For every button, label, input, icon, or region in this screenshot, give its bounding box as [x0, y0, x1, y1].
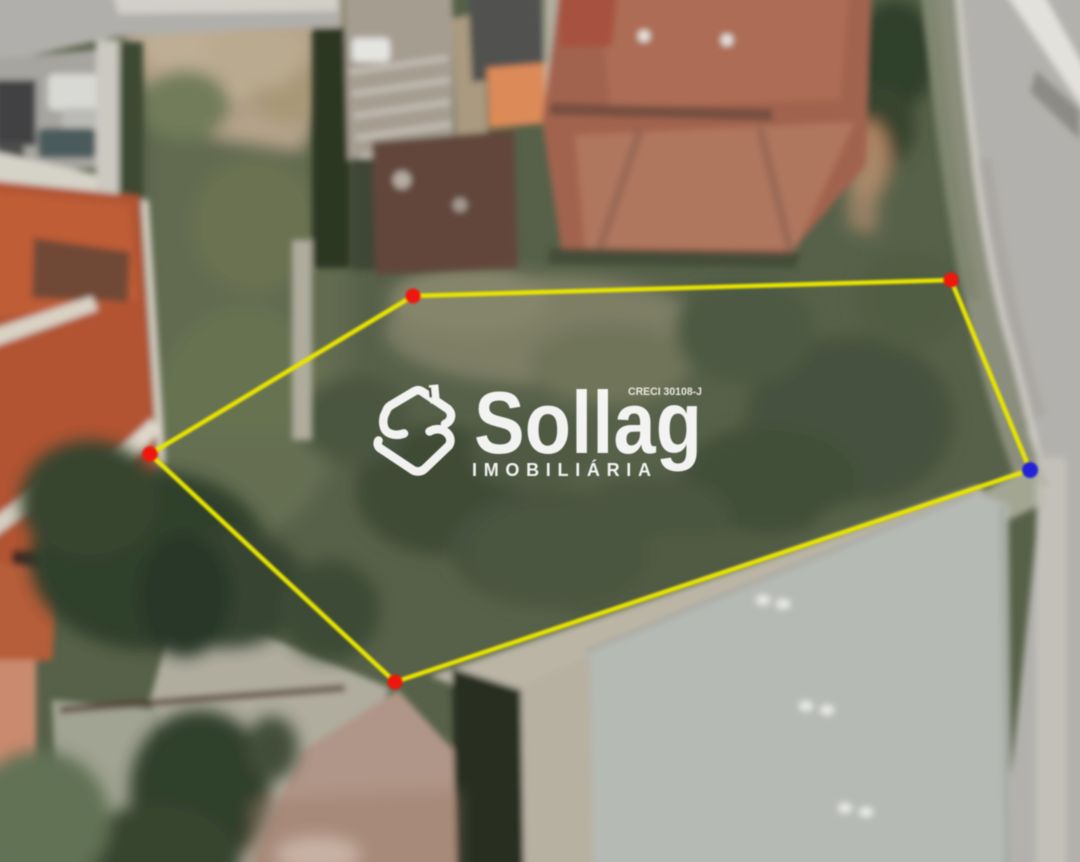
svg-text:Sollag: Sollag: [474, 373, 702, 472]
